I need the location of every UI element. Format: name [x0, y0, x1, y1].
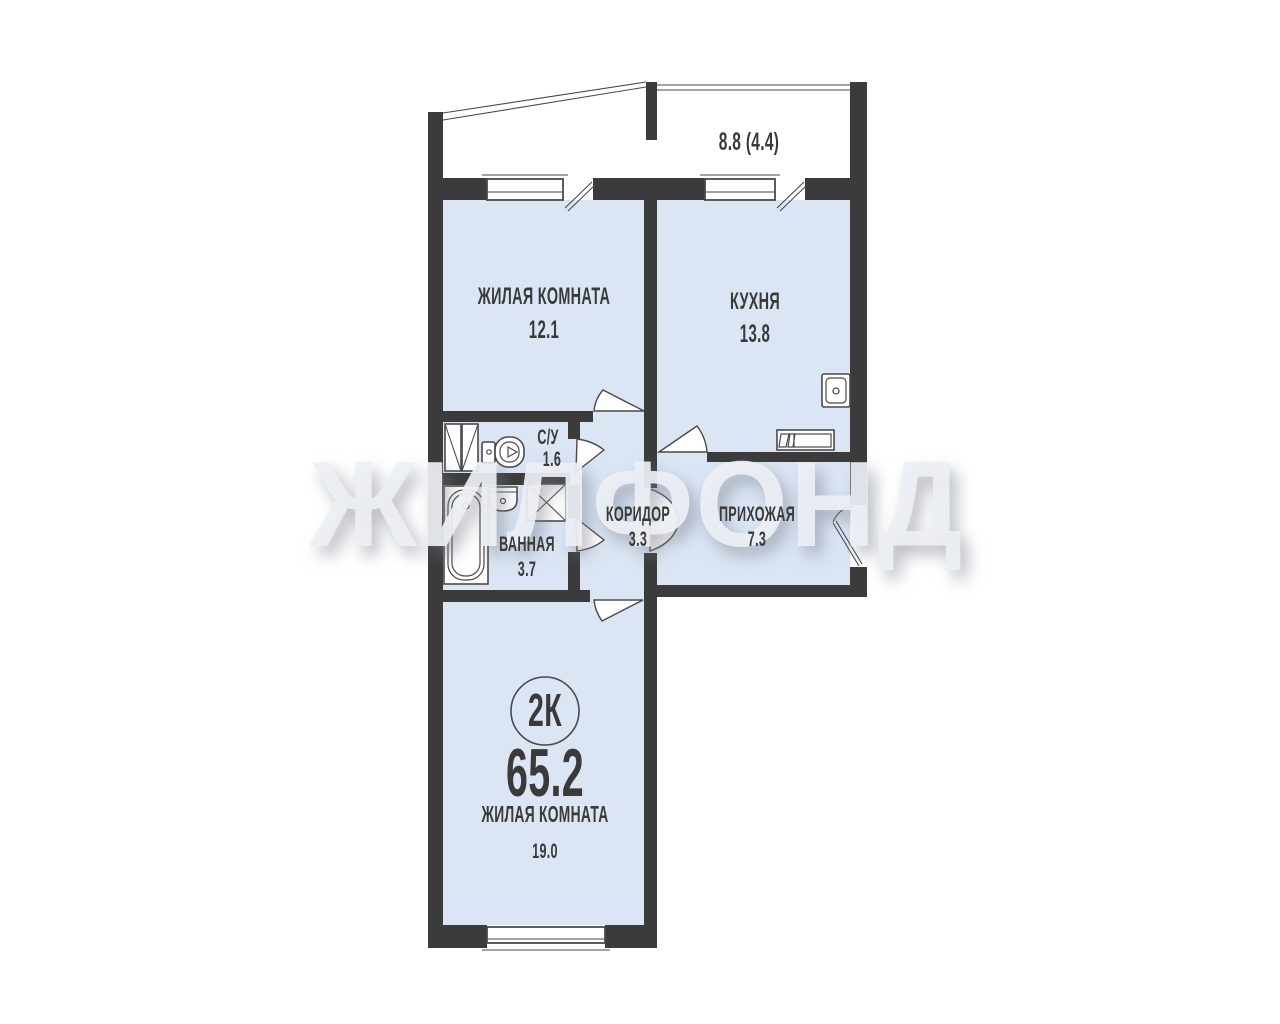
balcony-door2-gap	[775, 178, 805, 200]
kitchen-area-label: 13.8	[740, 320, 770, 348]
hall-area-label: 7.3	[748, 527, 766, 551]
bath-name-label: ВАННАЯ	[499, 532, 555, 556]
wall-top-3	[805, 178, 850, 200]
corridor-area-label: 3.3	[629, 527, 647, 551]
kitchen-name-label: КУХНЯ	[730, 288, 780, 315]
living2-name-label: ЖИЛАЯ КОМНАТА	[481, 803, 609, 828]
living1-area-label: 12.1	[529, 316, 559, 344]
living2-area-label: 19.0	[532, 839, 558, 863]
wall-central-lower	[644, 553, 657, 948]
wc-name-label: С/У	[537, 425, 558, 449]
window-living2	[487, 927, 605, 943]
kitchen-sink-icon	[822, 374, 850, 407]
floor-plan-page: ЖИЛФОНД 8.8 (4.4) ЖИЛАЯ КОМНАТА 12.1 КУХ…	[0, 0, 1280, 1024]
floor-plan-svg: ЖИЛФОНД 8.8 (4.4) ЖИЛАЯ КОМНАТА 12.1 КУХ…	[0, 0, 1280, 1024]
wall-top-1	[443, 178, 487, 200]
wall-living1-bottom	[428, 411, 593, 422]
corridor-name-label: КОРИДОР	[606, 502, 670, 526]
balcony-area-label: 8.8 (4.4)	[719, 128, 779, 156]
apartment-type-badge: 2К	[528, 685, 562, 737]
window-living1	[487, 179, 563, 200]
total-area-label: 65.2	[506, 735, 584, 811]
wall-bath-bottom	[428, 590, 590, 602]
living1-door-gap-floor	[593, 411, 644, 422]
wall-bottom-1	[428, 925, 487, 948]
balcony-wall-stub	[646, 82, 657, 140]
wc-area-label: 1.6	[543, 447, 561, 471]
hall-name-label: ПРИХОЖАЯ	[719, 502, 795, 526]
window-kitchen	[705, 179, 775, 200]
wall-hall-bottom	[644, 585, 867, 597]
living1-name-label: ЖИЛАЯ КОМНАТА	[477, 283, 610, 310]
wall-bottom-2	[605, 925, 657, 948]
balcony-door1-gap	[563, 178, 593, 200]
bath-area-label: 3.7	[518, 557, 536, 581]
